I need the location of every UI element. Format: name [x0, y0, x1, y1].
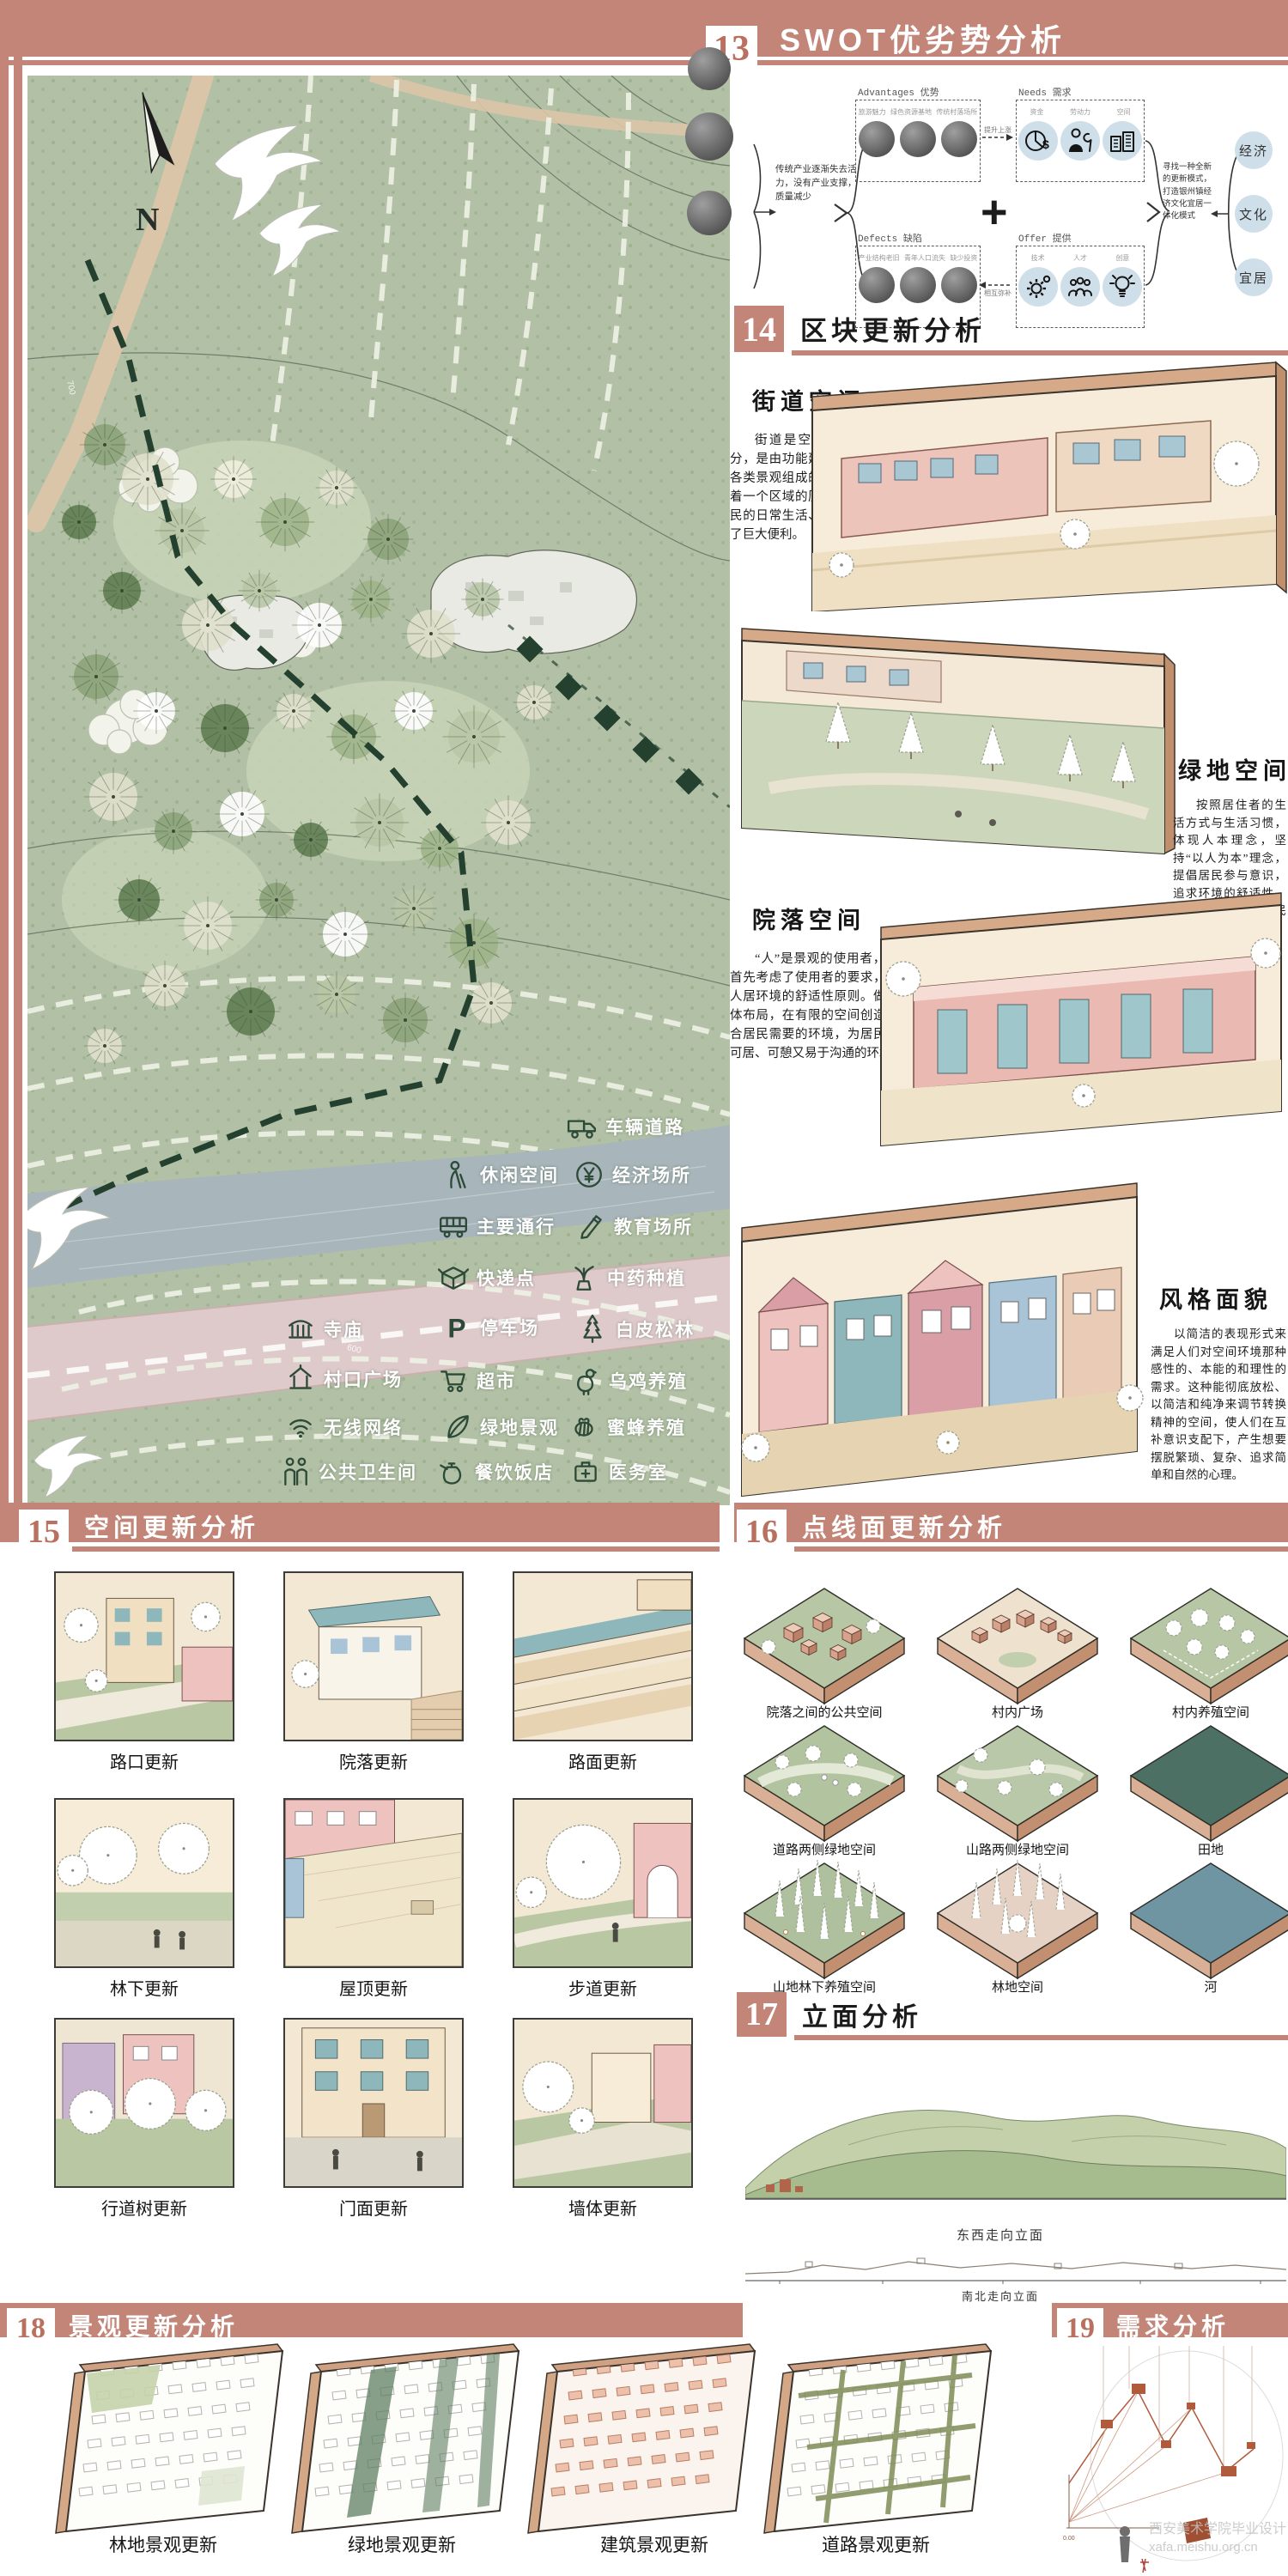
goal-culture: 文化: [1235, 195, 1273, 233]
legend-item: 寺庙: [285, 1314, 363, 1345]
bee-icon: [568, 1412, 599, 1443]
swot-needs-head: Needs 需求: [1018, 85, 1072, 99]
courtyard-space-panel: [878, 874, 1288, 1153]
legend-item: 乌鸡养殖: [570, 1365, 688, 1396]
goal-economy: 经济: [1235, 131, 1273, 169]
pencil-icon: [575, 1211, 606, 1242]
legend-item: 经济场所: [574, 1159, 691, 1190]
left-stripe-2: [14, 0, 22, 1504]
cart-icon: [438, 1365, 469, 1396]
legend-item: 无线网络: [285, 1412, 403, 1443]
panel-forest-landscape: [30, 2342, 288, 2542]
legend-item: 村口广场: [285, 1364, 403, 1394]
legend-item: 教育场所: [575, 1211, 693, 1242]
swot-offer-head: Offer 提供: [1018, 231, 1072, 245]
bulb-icon: [1103, 267, 1142, 307]
street-space-panel: [790, 354, 1288, 611]
needs-icons: $: [1017, 121, 1144, 161]
panel-road-landscape: [738, 2342, 996, 2542]
box-icon: [438, 1262, 469, 1293]
swot-advantages-head: Advantages 优势: [858, 85, 939, 99]
advantages-photos: [856, 121, 980, 157]
iso-farmland: [1121, 1716, 1288, 1857]
worker-icon: [1060, 121, 1100, 161]
iso-village-breeding-space: [1121, 1578, 1288, 1720]
swot-needs-box: 资金劳动力空间 $: [1016, 100, 1145, 182]
tile-understory-update: [54, 1798, 234, 1968]
tile-pavement-update: [513, 1571, 693, 1741]
green-space-title: 绿地空间: [1178, 752, 1288, 786]
iso-courtyard-public-space: [734, 1578, 914, 1720]
green-space-panel: [735, 599, 1177, 870]
tile-wall-update: [513, 2018, 693, 2188]
building-icon: [1103, 121, 1142, 161]
bus-icon: [438, 1211, 469, 1242]
swot-outro-text: 寻找一种全新的更新模式，打造银州镇经济文化宜居一体化模式: [1163, 161, 1219, 222]
needs-item-labels: 资金劳动力空间: [1017, 107, 1144, 117]
tile-crossroad-update: [54, 1571, 234, 1741]
legend-item: 主要通行: [438, 1211, 556, 1242]
pine-icon: [577, 1314, 608, 1345]
tile-storefront-update: [283, 2018, 464, 2188]
iso-roadside-green-space: [734, 1716, 914, 1857]
iso-village-plaza: [927, 1578, 1108, 1720]
north-south-elevation-drawing: [745, 2243, 1286, 2293]
offer-icons: [1017, 267, 1144, 307]
legend-item: 车辆道路: [567, 1111, 684, 1142]
section-16-rules: [794, 1546, 1288, 1552]
legend-item: 中药种植: [568, 1262, 686, 1293]
section-14-number: 14: [734, 306, 784, 352]
section-16-number: 16: [737, 1510, 787, 1554]
elder-icon: [441, 1159, 472, 1190]
legend-item: 快递点: [438, 1262, 536, 1293]
panel-green-landscape: [266, 2342, 524, 2542]
money-icon: $: [1018, 121, 1058, 161]
pavilion-icon: [285, 1364, 316, 1394]
iso-understory-breeding-space: [734, 1853, 914, 1995]
section-17-number: 17: [737, 1992, 787, 2037]
chicken-icon: [570, 1365, 601, 1396]
legend-item: 休闲空间: [441, 1159, 559, 1190]
iso-mountain-road-green-space: [927, 1716, 1108, 1857]
team-icon: [1060, 267, 1100, 307]
section-18-title: 景观更新分析: [69, 2308, 239, 2342]
medkit-icon: [570, 1456, 601, 1487]
legend-item: 公共卫生间: [280, 1456, 417, 1487]
swot-defects-head: Defects 缺陷: [858, 231, 922, 245]
gear-icon: [1018, 267, 1058, 307]
legend-item: 蜜蜂养殖: [568, 1412, 686, 1443]
herb-icon: [568, 1262, 599, 1293]
swot-arrow-top-label: 提升上涨: [984, 125, 1012, 135]
section-15-rules: [72, 1546, 720, 1552]
courtyard-space-title: 院落空间: [752, 902, 866, 935]
offer-item-labels: 技术人才创意: [1017, 253, 1144, 263]
left-stripe-1: [0, 0, 9, 1504]
tile-courtyard-update: [283, 1571, 464, 1741]
svg-text:P: P: [447, 1313, 465, 1343]
swot-offer-box: 技术人才创意: [1016, 246, 1145, 328]
goal-livable: 宜居: [1235, 258, 1273, 296]
section-19-title: 需求分析: [1116, 2308, 1230, 2342]
legend-item: P停车场: [441, 1312, 539, 1343]
tile-footpath-update: [513, 1798, 693, 1968]
parking-icon: P: [441, 1312, 472, 1343]
defects-item-labels: 产业结构老旧青年人口流失缺少投资: [856, 253, 980, 263]
section-19-number: 19: [1057, 2308, 1103, 2349]
east-west-elevation-drawing: [745, 2059, 1286, 2222]
swot-plus: +: [981, 185, 1008, 239]
leaf-icon: [441, 1412, 472, 1443]
teapot-icon: [436, 1456, 467, 1487]
svg-text:$: $: [1042, 137, 1049, 151]
iso-forest-space: [927, 1853, 1108, 1995]
section-17-rules: [794, 2035, 1288, 2040]
truck-icon: [567, 1111, 598, 1142]
defects-photos: [856, 267, 980, 303]
legend-item: 白皮松林: [577, 1314, 695, 1345]
iso-river: [1121, 1853, 1288, 1995]
swot-advantages-box: 旅游魅力绿色资源基地传统村落场所: [855, 100, 981, 182]
section-15-title: 空间更新分析: [84, 1508, 259, 1544]
coin-icon: [574, 1159, 605, 1190]
people-icon: [280, 1456, 311, 1487]
legend-item: 超市: [438, 1365, 516, 1396]
legend-item: 餐饮饭店: [436, 1456, 554, 1487]
panel-building-landscape: [502, 2342, 760, 2542]
swot-intro-text: 传统产业逐渐失去活力，没有产业支撑，质量减少: [775, 163, 858, 204]
legend-item: 绿地景观: [441, 1412, 559, 1443]
legend-item: 医务室: [570, 1456, 668, 1487]
style-facade-title: 风格面貌: [1159, 1281, 1273, 1315]
svg-text:0.00: 0.00: [1063, 2536, 1075, 2542]
tile-street-tree-update: [54, 2018, 234, 2188]
poster-board: 13 SWOT优劣势分析 N 700 600 车辆道路休闲空间经济场所主要通行教…: [0, 0, 1288, 2576]
temple-icon: [285, 1314, 316, 1345]
style-facade-text: 以简洁的表现形式来满足人们对空间环境那种感性的、本能的和理性的需求。这种能彻底放…: [1151, 1326, 1286, 1485]
tile-roof-update: [283, 1798, 464, 1968]
wifi-icon: [285, 1412, 316, 1443]
east-west-elevation-label: 东西走向立面: [893, 2226, 1108, 2244]
swot-arrow-bottom-label: 相互弥补: [984, 289, 1012, 298]
style-facade-panel: [733, 1149, 1147, 1514]
section-14-title: 区块更新分析: [800, 309, 986, 348]
section-17-title: 立面分析: [802, 1996, 922, 2033]
site-plan-map: N 700 600 车辆道路休闲空间经济场所主要通行教育场所快递点中药种植寺庙P…: [27, 76, 730, 1505]
section-16-title: 点线面更新分析: [802, 1508, 1006, 1544]
section-15-number: 15: [19, 1510, 69, 1554]
north-south-elevation-label: 南北走向立面: [893, 2287, 1108, 2304]
advantages-item-labels: 旅游魅力绿色资源基地传统村落场所: [856, 107, 980, 117]
north-label: N: [136, 201, 159, 239]
watermark: 西安美术学院毕业设计 xafa.meishu.org.cn: [1149, 2521, 1286, 2555]
